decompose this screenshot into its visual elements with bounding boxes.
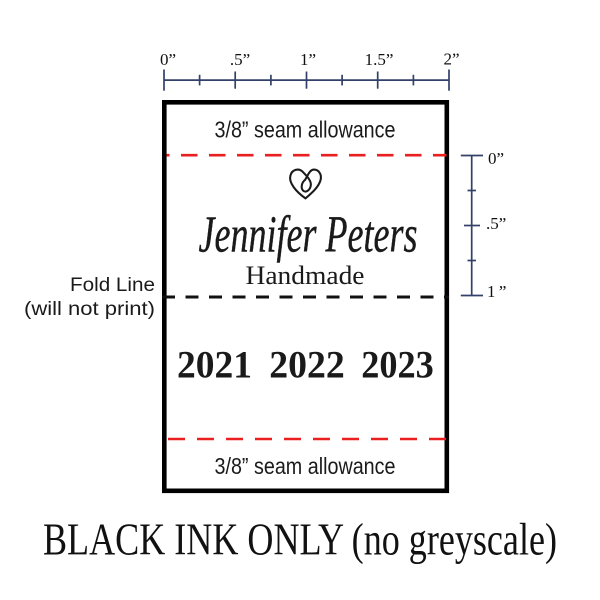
svg-text:1.5”: 1.5” [365, 50, 394, 69]
svg-text:2022: 2022 [269, 344, 345, 387]
svg-text:3/8” seam allowance: 3/8” seam allowance [215, 453, 396, 479]
svg-text:1”: 1” [300, 50, 316, 69]
svg-text:2021: 2021 [177, 344, 252, 387]
svg-text:3/8” seam allowance: 3/8” seam allowance [215, 117, 396, 143]
svg-text:0”: 0” [488, 149, 504, 168]
svg-text:Fold Line: Fold Line [70, 275, 155, 296]
svg-text:0”: 0” [160, 50, 176, 69]
svg-text:.5”: .5” [486, 214, 506, 233]
svg-text:2023: 2023 [361, 344, 434, 387]
svg-text:BLACK INK ONLY (no greyscale): BLACK INK ONLY (no greyscale) [43, 515, 557, 565]
svg-text:1 ”: 1 ” [487, 282, 506, 301]
svg-text:.5”: .5” [230, 50, 250, 69]
svg-text:Jennifer Peters: Jennifer Peters [199, 207, 418, 264]
svg-text:2”: 2” [443, 50, 459, 69]
svg-text:(will not print): (will not print) [24, 299, 155, 320]
svg-text:Handmade: Handmade [246, 261, 365, 290]
